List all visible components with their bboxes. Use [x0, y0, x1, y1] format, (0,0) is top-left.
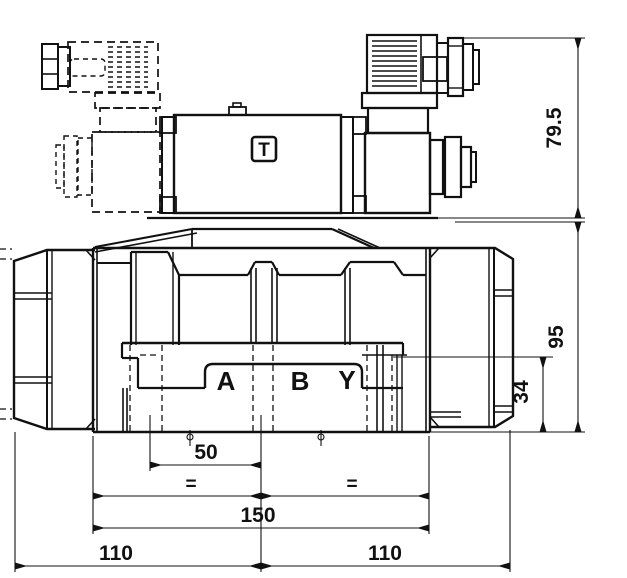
equal-symbol-left: =: [185, 474, 196, 495]
dim-value-solenoid-height: 79.5: [543, 107, 566, 148]
dim-subplate-width: 150: [93, 504, 429, 528]
port-b-label: B: [291, 366, 310, 396]
connector-ribs-hidden-icon: [108, 47, 148, 87]
dim-value-right-width: 110: [368, 542, 402, 565]
manual-override-hidden-icon: [56, 136, 92, 197]
dim-value-port-spacing: 50: [194, 441, 217, 464]
port-y-label: Y: [338, 365, 355, 395]
hidden-stubs: [0, 249, 12, 419]
alternate-solenoid-hidden-outline: [42, 42, 160, 212]
solenoid-type-badge: T: [252, 137, 276, 161]
manual-override-icon: [430, 137, 476, 197]
dim-value-left-width: 110: [99, 542, 133, 565]
cable-gland-icon: [42, 44, 70, 89]
din-connector: [362, 35, 479, 133]
right-end-cap: [430, 248, 513, 427]
equal-symbol-right: =: [346, 474, 357, 495]
valve-dimension-drawing: T: [0, 0, 627, 578]
connector-gland-icon: [437, 38, 479, 96]
dim-solenoid-height: 79.5: [543, 38, 578, 218]
dim-body-height: 95: [545, 222, 578, 432]
connector-ribs-icon: [372, 41, 417, 86]
solenoid-type-label: T: [258, 140, 270, 161]
dim-value-body-height: 95: [545, 325, 568, 349]
left-end-cap: [14, 250, 95, 429]
dim-overall-halves: 110 110: [15, 542, 510, 566]
port-a-label: A: [217, 366, 236, 396]
dim-port-spacing: 50: [150, 441, 261, 465]
dim-value-subplate-width: 150: [240, 504, 275, 527]
dim-port-face-height: 34: [510, 357, 543, 432]
dim-value-port-face-height: 34: [510, 380, 533, 404]
drawing-canvas: T: [0, 0, 627, 578]
